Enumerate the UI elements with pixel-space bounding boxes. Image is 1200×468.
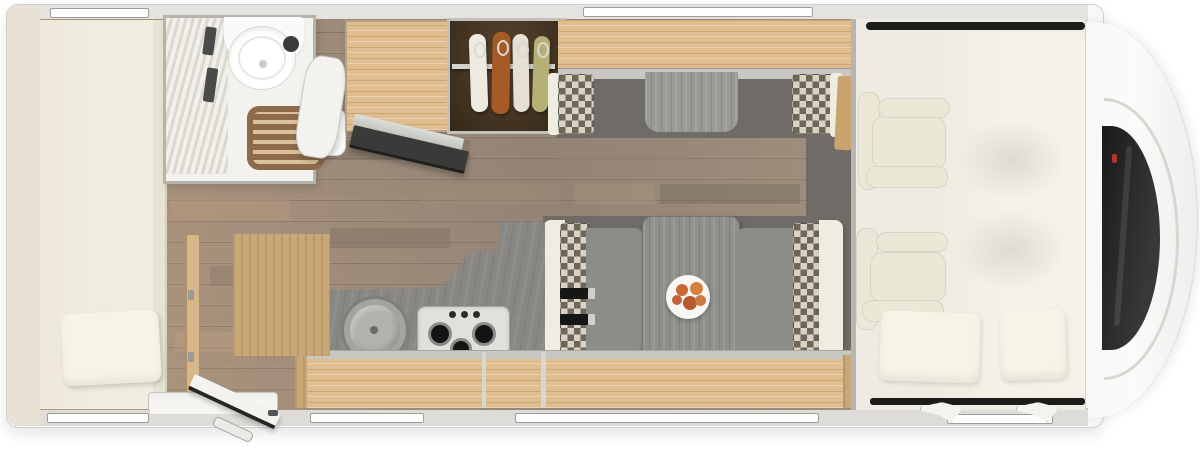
seat-belt	[560, 288, 590, 299]
window-bottom-kitchen	[310, 413, 424, 423]
floor-plank	[420, 184, 560, 204]
floor-plank	[560, 140, 690, 160]
window-top-lounge	[583, 7, 813, 17]
seat-belt-buckle	[588, 288, 595, 299]
hob-burner	[472, 322, 496, 346]
bench-right-seat	[735, 228, 795, 352]
seat-belt-buckle	[588, 314, 595, 325]
front-badge	[1112, 154, 1117, 163]
cab-door-edge	[870, 398, 1085, 405]
hanger-hook	[537, 42, 549, 58]
base-locker-divider	[482, 352, 486, 408]
hinge	[188, 290, 194, 300]
food-item	[690, 282, 703, 295]
motorhome-floorplan	[0, 0, 1200, 468]
floor-plank	[660, 184, 800, 204]
overhead-locker	[558, 20, 856, 70]
cab-bed-pillow	[999, 309, 1067, 381]
floor-plank	[330, 228, 450, 248]
window-bottom-lounge	[515, 413, 819, 423]
window-top-rear	[50, 8, 149, 18]
passenger-seat-cushion	[870, 252, 946, 302]
base-locker-end	[295, 355, 307, 408]
pleated-shower-door	[166, 18, 228, 174]
hanger-hook	[497, 40, 509, 56]
sofa-cushion-checkered-right	[792, 74, 834, 134]
entry-door-hinge	[268, 410, 278, 416]
base-locker-front	[295, 359, 855, 408]
ghost-seat-outline	[956, 120, 1066, 200]
seat-belt	[560, 314, 590, 325]
toilet-cassette-cap	[283, 36, 299, 52]
entry-floor-panel	[233, 234, 330, 356]
sofa-cushion-checkered-left	[558, 74, 594, 134]
rear-wall-band	[7, 5, 41, 425]
driver-seat-cushion	[872, 116, 946, 170]
toilet-seat-ring	[238, 36, 286, 80]
windshield-reflection	[1114, 146, 1133, 326]
rear-bed-pillow	[60, 309, 162, 386]
cab-roof-edge	[866, 22, 1085, 30]
hanger-hook	[517, 42, 529, 58]
food-item	[695, 295, 706, 306]
hinge	[188, 352, 194, 362]
driver-seat-armrest	[878, 98, 950, 118]
hanger-hook	[474, 42, 486, 58]
cab-bed-pillow	[879, 310, 981, 383]
passenger-seat-armrest	[876, 232, 948, 252]
bench-right-frame	[819, 220, 843, 356]
driver-seat-armrest	[866, 166, 948, 188]
hob-control-knob	[461, 311, 468, 318]
sink-lid-knob	[370, 326, 378, 334]
hob-burner	[428, 322, 452, 346]
hob-control-knob	[449, 311, 456, 318]
floor-plank	[170, 200, 290, 220]
floor-plank	[575, 184, 655, 204]
hob-control-knob	[473, 311, 480, 318]
base-locker-divider	[541, 352, 546, 408]
food-item	[672, 295, 682, 305]
toilet-flush-button	[259, 60, 267, 68]
sofa-center-panel	[645, 72, 738, 132]
window-bottom-rear	[47, 413, 149, 423]
bed-side-rail	[186, 234, 200, 394]
ghost-seat-outline	[956, 210, 1066, 290]
